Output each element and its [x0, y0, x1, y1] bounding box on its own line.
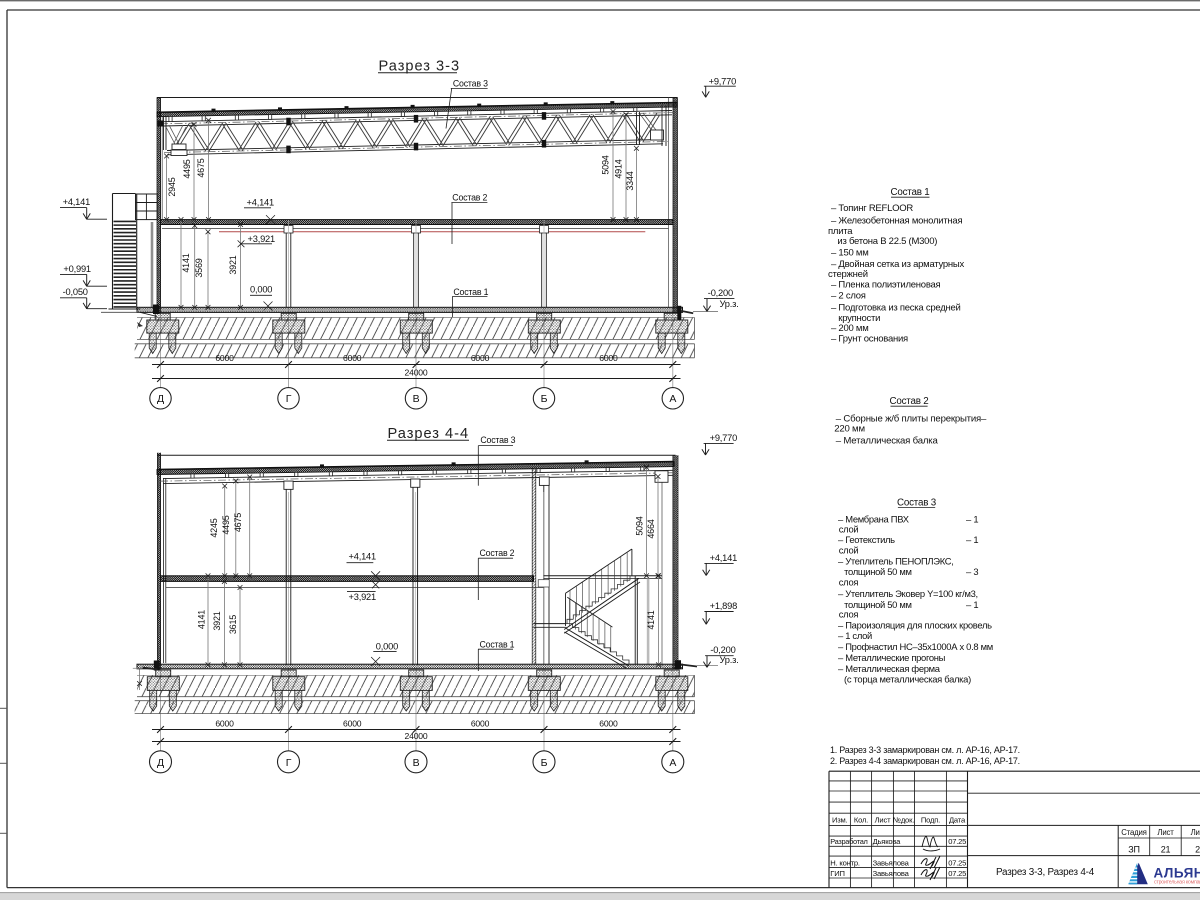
- svg-text:6000: 6000: [599, 718, 618, 728]
- svg-text:07.25: 07.25: [948, 869, 966, 878]
- svg-text:Кол.: Кол.: [854, 815, 868, 824]
- svg-text:0,000: 0,000: [250, 285, 272, 295]
- svg-text:– Металлические прогоны: – Металлические прогоны: [838, 652, 946, 663]
- svg-text:+9,770: +9,770: [709, 76, 737, 86]
- svg-text:4245: 4245: [209, 518, 219, 537]
- svg-text:Состав 1: Состав 1: [453, 287, 488, 297]
- svg-text:-0,200: -0,200: [710, 645, 735, 655]
- svg-text:21: 21: [1161, 844, 1171, 854]
- svg-text:Ур.з.: Ур.з.: [720, 655, 739, 665]
- svg-text:5094: 5094: [601, 155, 611, 174]
- svg-text:Лист: Лист: [875, 815, 891, 824]
- svg-text:Состав 1: Состав 1: [480, 639, 515, 649]
- svg-text:+4,141: +4,141: [710, 553, 738, 563]
- svg-text:+0,991: +0,991: [63, 264, 91, 274]
- svg-text:стержней: стержней: [828, 269, 868, 280]
- svg-text:2: 2: [1195, 844, 1200, 854]
- svg-text:(с торца металлическая балка): (с торца металлическая балка): [844, 674, 971, 685]
- svg-text:– Топинг REFLOOR: – Топинг REFLOOR: [831, 203, 913, 214]
- svg-text:Г: Г: [286, 393, 292, 405]
- svg-text:– 3: – 3: [966, 566, 978, 577]
- svg-text:Дьякова: Дьякова: [873, 837, 902, 846]
- svg-text:– Утеплитель ПЕНОПЛЭКС,: – Утеплитель ПЕНОПЛЭКС,: [838, 555, 954, 566]
- svg-text:+9,770: +9,770: [710, 433, 738, 443]
- svg-text:Завьялова: Завьялова: [873, 859, 910, 868]
- svg-text:Состав 1: Состав 1: [890, 187, 929, 198]
- svg-text:24000: 24000: [405, 368, 428, 378]
- svg-text:1. Разрез 3-3 замаркирован см.: 1. Разрез 3-3 замаркирован см. л. АР-16,…: [830, 745, 1020, 755]
- svg-text:– Утеплитель Эковер Y=100 кг/м: – Утеплитель Эковер Y=100 кг/м3,: [838, 588, 978, 599]
- svg-text:В: В: [413, 757, 420, 769]
- svg-text:6000: 6000: [471, 718, 490, 728]
- svg-text:3344: 3344: [625, 171, 635, 190]
- svg-text:Ур.з.: Ур.з.: [720, 299, 739, 309]
- svg-text:– Железобетонная монолитная: – Железобетонная монолитная: [831, 215, 962, 226]
- svg-text:Д: Д: [157, 393, 164, 405]
- svg-text:– 150 мм: – 150 мм: [831, 248, 868, 259]
- svg-text:5094: 5094: [634, 516, 644, 535]
- svg-text:Завьялова: Завьялова: [873, 869, 910, 878]
- svg-text:4675: 4675: [196, 158, 206, 177]
- svg-text:Д: Д: [157, 757, 164, 769]
- svg-text:Состав 2: Состав 2: [480, 548, 515, 558]
- svg-text:4914: 4914: [614, 159, 624, 178]
- svg-text:-0,200: -0,200: [708, 288, 733, 298]
- svg-text:Дата: Дата: [949, 815, 966, 824]
- svg-text:4675: 4675: [233, 513, 243, 532]
- svg-text:слоя: слоя: [839, 609, 859, 620]
- svg-text:4495: 4495: [221, 515, 231, 534]
- svg-text:+3,921: +3,921: [248, 234, 276, 244]
- svg-text:Н. контр.: Н. контр.: [830, 859, 860, 868]
- svg-text:+3,921: +3,921: [349, 592, 377, 602]
- svg-text:Б: Б: [541, 393, 548, 405]
- svg-text:Состав 2: Состав 2: [889, 396, 928, 407]
- svg-text:В: В: [413, 393, 420, 405]
- svg-text:4141: 4141: [197, 610, 207, 629]
- svg-text:6000: 6000: [599, 353, 618, 363]
- svg-text:Разрез 3-3: Разрез 3-3: [379, 59, 461, 75]
- svg-text:+4,141: +4,141: [349, 552, 377, 562]
- svg-text:Изм.: Изм.: [832, 815, 848, 824]
- svg-text:0,000: 0,000: [376, 642, 398, 652]
- svg-text:– Подготовка из песка средней: – Подготовка из песка средней: [831, 302, 961, 313]
- svg-text:Состав 3: Состав 3: [897, 497, 937, 508]
- svg-text:3569: 3569: [194, 258, 204, 277]
- svg-text:Состав 2: Состав 2: [452, 193, 487, 203]
- svg-text:– Пленка полиэтиленовая: – Пленка полиэтиленовая: [831, 280, 941, 291]
- svg-text:4495: 4495: [182, 159, 192, 178]
- svg-text:– Грунт основания: – Грунт основания: [831, 334, 908, 345]
- svg-text:4141: 4141: [646, 610, 656, 629]
- svg-text:3615: 3615: [228, 615, 238, 634]
- svg-text:6000: 6000: [343, 353, 362, 363]
- svg-text:Лис: Лис: [1191, 828, 1200, 837]
- svg-text:строительная компания: строительная компания: [1154, 880, 1200, 886]
- svg-text:4664: 4664: [646, 519, 656, 538]
- svg-text:– 1: – 1: [966, 599, 978, 610]
- svg-text:Подп.: Подп.: [921, 815, 940, 824]
- svg-text:07.25: 07.25: [948, 837, 966, 846]
- svg-text:ГИП: ГИП: [830, 869, 844, 878]
- svg-text:3921: 3921: [212, 611, 222, 630]
- svg-text:– Металлическая ферма: – Металлическая ферма: [838, 663, 941, 674]
- svg-text:– Геотекстиль: – Геотекстиль: [838, 534, 895, 545]
- svg-text:А: А: [669, 757, 676, 769]
- svg-text:-0,050: -0,050: [63, 287, 88, 297]
- svg-text:4141: 4141: [181, 253, 191, 272]
- svg-text:24000: 24000: [405, 731, 428, 741]
- svg-text:Разрез 3-3, Разрез 4-4: Разрез 3-3, Разрез 4-4: [996, 867, 1095, 878]
- svg-text:+4,141: +4,141: [63, 197, 91, 207]
- svg-text:Лист: Лист: [1157, 828, 1174, 837]
- svg-text:слой: слой: [839, 523, 859, 534]
- svg-text:– Профнастил НС–35х1000А х 0.8: – Профнастил НС–35х1000А х 0.8 мм: [838, 641, 993, 652]
- svg-text:220 мм: 220 мм: [834, 424, 865, 435]
- svg-text:Разработал: Разработал: [830, 837, 867, 846]
- svg-text:слоя: слоя: [839, 577, 859, 588]
- svg-text:+4,141: +4,141: [247, 197, 275, 207]
- svg-text:толщиной 50 мм: толщиной 50 мм: [844, 566, 912, 577]
- svg-text:– 1 слой: – 1 слой: [838, 630, 872, 641]
- svg-text:А: А: [669, 393, 676, 405]
- svg-text:– 2 слоя: – 2 слоя: [831, 290, 866, 301]
- svg-text:2945: 2945: [167, 177, 177, 196]
- svg-text:+1,898: +1,898: [710, 601, 738, 611]
- svg-text:Состав 3: Состав 3: [453, 78, 488, 88]
- svg-text:6000: 6000: [215, 718, 234, 728]
- svg-text:АЛЬЯНС: АЛЬЯНС: [1154, 866, 1200, 881]
- svg-text:– 1: – 1: [966, 514, 978, 525]
- svg-text:3921: 3921: [228, 255, 238, 274]
- svg-text:2. Разрез 4-4 замаркирован см.: 2. Разрез 4-4 замаркирован см. л. АР-16,…: [830, 756, 1020, 766]
- svg-text:6000: 6000: [471, 353, 490, 363]
- svg-text:6000: 6000: [215, 353, 234, 363]
- svg-text:– Металлическая балка: – Металлическая балка: [836, 435, 939, 446]
- svg-text:ЗП: ЗП: [1128, 844, 1140, 854]
- svg-text:07.25: 07.25: [948, 859, 966, 868]
- svg-text:6000: 6000: [343, 718, 362, 728]
- svg-text:Разрез 4-4: Разрез 4-4: [388, 426, 470, 442]
- svg-text:Г: Г: [286, 757, 292, 769]
- svg-text:Состав 3: Состав 3: [480, 435, 515, 445]
- svg-text:слой: слой: [839, 545, 859, 556]
- svg-text:№док.: №док.: [893, 815, 914, 824]
- svg-text:– 1: – 1: [966, 534, 978, 545]
- svg-text:из бетона В 22.5 (М300): из бетона В 22.5 (М300): [837, 236, 937, 247]
- svg-text:Стадия: Стадия: [1121, 828, 1146, 837]
- svg-text:Б: Б: [541, 757, 548, 769]
